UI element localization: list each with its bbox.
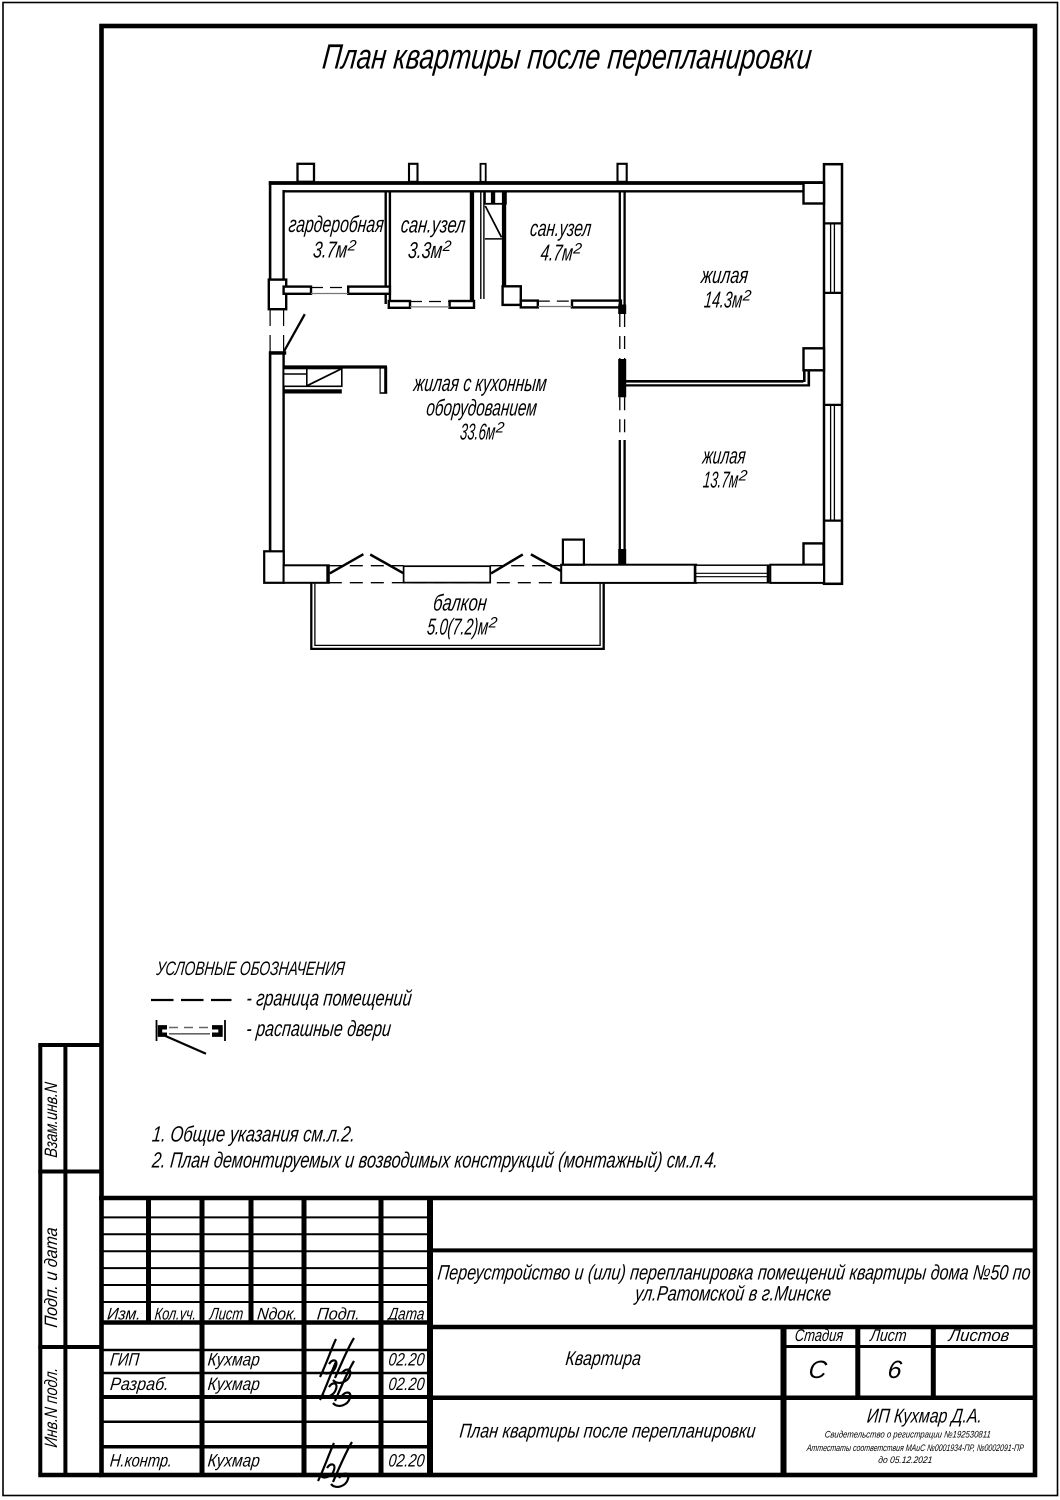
svg-text:Лист: Лист [869,1326,908,1345]
svg-text:ГИП: ГИП [109,1350,141,1370]
svg-text:Инв.N подл.: Инв.N подл. [41,1366,61,1448]
svg-text:Nдок.: Nдок. [256,1305,298,1324]
svg-text:Разраб.: Разраб. [109,1374,170,1394]
svg-text:02.20: 02.20 [388,1374,426,1394]
svg-text:ул.Ратомской в г.Минске: ул.Ратомской в г.Минске [632,1283,832,1306]
svg-text:Стадия: Стадия [794,1326,844,1345]
svg-text:Квартира: Квартира [564,1348,642,1370]
svg-text:4.7м: 4.7м [539,240,574,266]
svg-text:Лист: Лист [208,1305,244,1324]
svg-text:Взам.инв.N: Взам.инв.N [41,1081,61,1159]
svg-text:5.0(7.2)м: 5.0(7.2)м [426,613,490,639]
svg-text:6: 6 [886,1356,903,1384]
svg-text:Переустройство и (или) перепла: Переустройство и (или) перепланировка по… [436,1262,1032,1285]
svg-text:- распашные двери: - распашные двери [245,1016,392,1041]
svg-text:2: 2 [737,468,749,485]
svg-text:Подп. и дата: Подп. и дата [41,1226,61,1328]
svg-text:Свидетельство о регистрации №1: Свидетельство о регистрации №192530811 [824,1430,991,1441]
svg-text:жилая: жилая [699,262,749,288]
svg-text:Аттестаты соответствия МАиС №0: Аттестаты соответствия МАиС №0001934-ПР,… [805,1443,1024,1454]
svg-text:2: 2 [741,288,753,305]
svg-text:33.6м: 33.6м [459,418,497,444]
svg-text:Изм.: Изм. [106,1305,141,1324]
svg-text:сан.узел: сан.узел [400,212,467,238]
svg-text:до 05.12.2021: до 05.12.2021 [878,1455,933,1466]
svg-text:2: 2 [494,419,506,436]
svg-text:3.7м: 3.7м [312,237,349,263]
svg-text:Кол.уч.: Кол.уч. [154,1305,197,1324]
svg-text:2: 2 [487,614,499,631]
svg-text:- граница помещений: - граница помещений [245,986,413,1011]
svg-text:Кухмар: Кухмар [207,1451,261,1471]
svg-text:План квартиры после перепланир: План квартиры после перепланировки [458,1421,756,1443]
svg-text:ИП Кухмар Д.А.: ИП Кухмар Д.А. [866,1406,983,1428]
svg-text:сан.узел: сан.узел [529,215,593,241]
svg-text:Н.контр.: Н.контр. [109,1451,173,1471]
svg-text:2: 2 [441,238,453,255]
svg-text:Кухмар: Кухмар [207,1374,261,1394]
svg-text:2: 2 [346,238,358,255]
svg-text:1. Общие указания см.л.2.: 1. Общие указания см.л.2. [151,1121,357,1146]
svg-text:Подп.: Подп. [316,1305,361,1324]
svg-text:гардеробная: гардеробная [287,211,385,237]
svg-text:УСЛОВНЫЕ ОБОЗНАЧЕНИЯ: УСЛОВНЫЕ ОБОЗНАЧЕНИЯ [155,958,346,980]
svg-text:02.20: 02.20 [388,1350,426,1370]
svg-text:13.7м: 13.7м [702,467,740,493]
svg-text:жилая с кухонным: жилая с кухонным [412,370,549,396]
svg-text:оборудованием: оборудованием [425,394,538,420]
svg-text:Кухмар: Кухмар [207,1350,261,1370]
svg-text:С: С [807,1356,829,1384]
svg-text:2: 2 [572,241,584,258]
svg-text:02.20: 02.20 [388,1451,426,1471]
svg-text:Листов: Листов [947,1326,1010,1345]
svg-text:жилая: жилая [701,443,747,469]
svg-text:балкон: балкон [432,590,488,616]
svg-text:2. План демонтируемых и возвод: 2. План демонтируемых и возводимых конст… [150,1148,719,1173]
svg-text:3.3м: 3.3м [407,237,444,263]
svg-text:14.3м: 14.3м [703,287,744,313]
svg-text:План квартиры после перепланир: План квартиры после перепланировки [321,38,814,77]
svg-text:Дата: Дата [386,1305,425,1324]
